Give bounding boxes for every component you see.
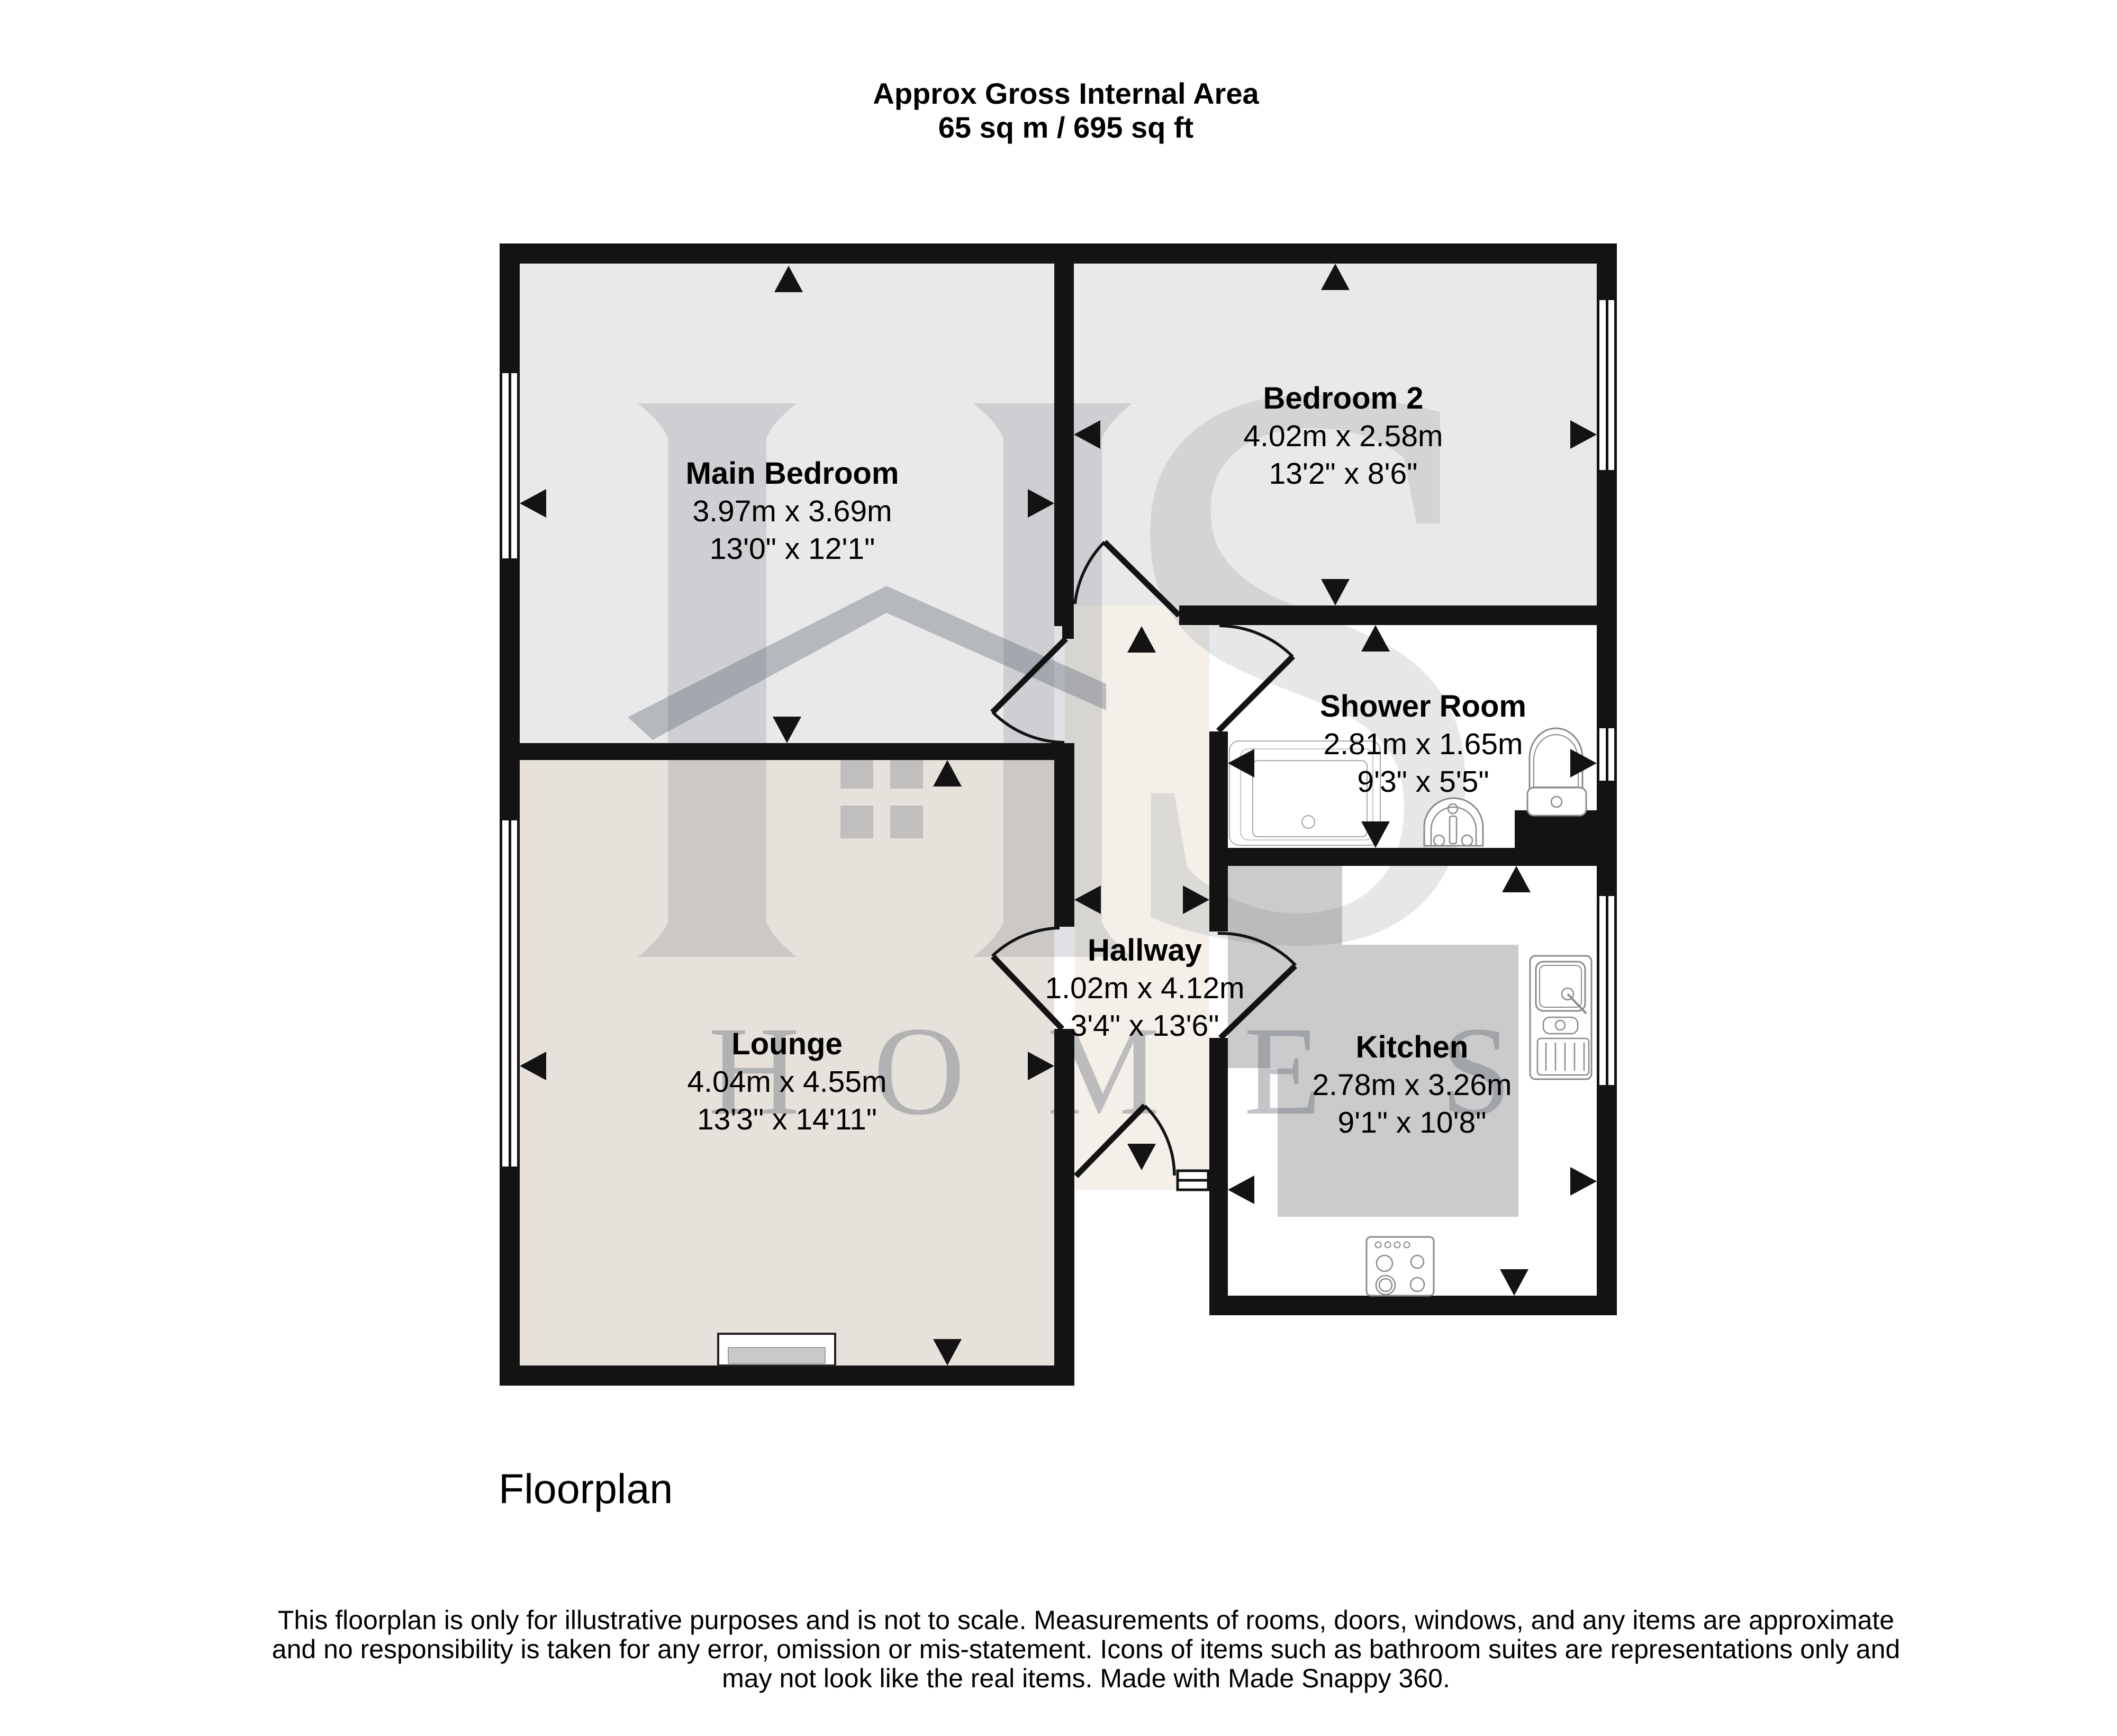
svg-text:Approx Gross Internal Area: Approx Gross Internal Area [873,77,1259,110]
svg-text:O: O [873,1000,965,1141]
svg-text:Shower Room: Shower Room [1320,689,1526,724]
svg-text:Bedroom 2: Bedroom 2 [1263,381,1424,415]
svg-text:Kitchen: Kitchen [1356,1030,1469,1064]
svg-text:4.04m x 4.55m: 4.04m x 4.55m [687,1065,886,1099]
svg-text:This floorplan is only for ill: This floorplan is only for illustrative … [278,1605,1894,1635]
svg-text:Floorplan: Floorplan [499,1465,673,1512]
svg-text:13'3" x 14'11": 13'3" x 14'11" [697,1102,877,1136]
svg-text:13'0" x 12'1": 13'0" x 12'1" [710,532,875,566]
svg-text:9'1" x 10'8": 9'1" x 10'8" [1338,1106,1487,1140]
svg-text:1.02m x 4.12m: 1.02m x 4.12m [1045,971,1244,1005]
svg-text:E: E [1244,1000,1322,1141]
svg-text:Hallway: Hallway [1088,933,1202,968]
svg-text:3'4" x 13'6": 3'4" x 13'6" [1071,1009,1219,1043]
svg-text:may not look like the real ite: may not look like the real items. Made w… [722,1663,1450,1693]
svg-text:2.81m x 1.65m: 2.81m x 1.65m [1323,727,1523,761]
svg-text:Main Bedroom: Main Bedroom [686,456,899,491]
svg-text:Lounge: Lounge [731,1027,842,1061]
svg-text:and no responsibility is taken: and no responsibility is taken for any e… [272,1634,1900,1664]
svg-text:9'3" x 5'5": 9'3" x 5'5" [1357,765,1489,799]
svg-text:3.97m x 3.69m: 3.97m x 3.69m [692,494,892,528]
svg-text:13'2" x 8'6": 13'2" x 8'6" [1269,457,1418,491]
svg-text:65 sq m / 695 sq ft: 65 sq m / 695 sq ft [938,111,1193,144]
svg-text:4.02m x 2.58m: 4.02m x 2.58m [1243,419,1443,453]
svg-text:2.78m x 3.26m: 2.78m x 3.26m [1312,1068,1512,1102]
